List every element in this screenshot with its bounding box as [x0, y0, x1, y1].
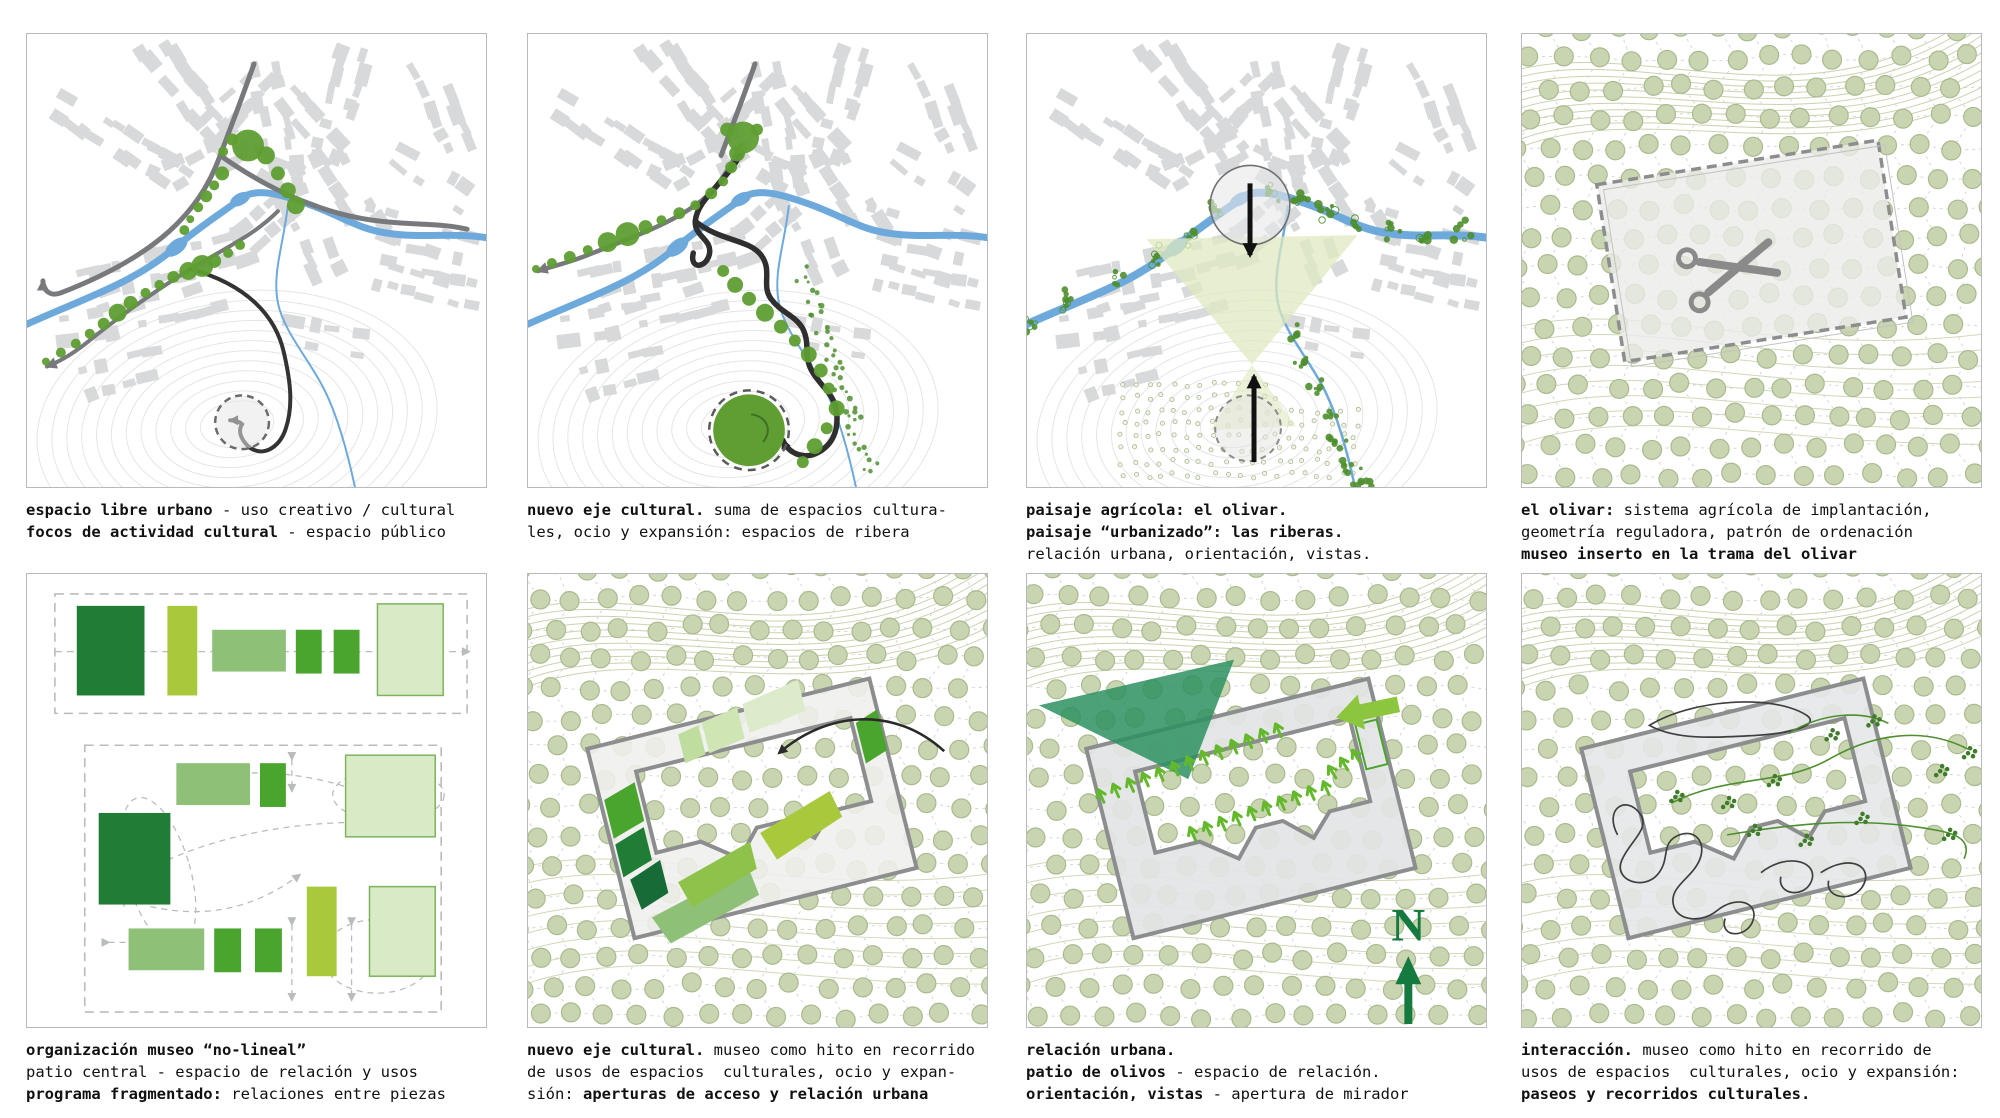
caption-line: relación urbana.: [1026, 1039, 1487, 1061]
caption-line: patio de olivos - espacio de relación.: [1026, 1061, 1487, 1083]
panel-espacio-libre-urbano: espacio libre urbano - uso creativo / cu…: [26, 33, 487, 543]
map-nuevo-eje-cultural-svg: [528, 34, 987, 487]
caption-line: geometría reguladora, patrón de ordenaci…: [1521, 521, 1982, 543]
caption-line: museo inserto en la trama del olivar: [1521, 543, 1982, 565]
caption-line: nuevo eje cultural. suma de espacios cul…: [527, 499, 988, 521]
panel-interaccion: interacción. museo como hito en recorrid…: [1521, 573, 1982, 1105]
panel-el-olivar: el olivar: sistema agrícola de implantac…: [1521, 33, 1982, 565]
caption-line: orientación, vistas - apertura de mirado…: [1026, 1083, 1487, 1105]
caption-line: programa fragmentado: relaciones entre p…: [26, 1083, 487, 1105]
caption-nuevo-eje-cultural-museo: nuevo eje cultural. museo como hito en r…: [527, 1039, 988, 1105]
caption-line: paisaje agrícola: el olivar.: [1026, 499, 1487, 521]
map-paisaje-agricola: [1026, 33, 1487, 488]
map-espacio-libre-urbano: [26, 33, 487, 488]
diagram-interaccion: [1521, 573, 1982, 1028]
panel-nuevo-eje-cultural-urbano: nuevo eje cultural. suma de espacios cul…: [527, 33, 988, 543]
caption-line: organización museo “no-lineal”: [26, 1039, 487, 1061]
caption-line: focos de actividad cultural - espacio pú…: [26, 521, 487, 543]
caption-organizacion-museo: organización museo “no-lineal”patio cent…: [26, 1039, 487, 1105]
panel-paisaje-agricola: paisaje agrícola: el olivar.paisaje “urb…: [1026, 33, 1487, 565]
diagram-relacion-urbana-svg: N: [1027, 574, 1486, 1027]
panel-nuevo-eje-cultural-museo: nuevo eje cultural. museo como hito en r…: [527, 573, 988, 1105]
caption-line: espacio libre urbano - uso creativo / cu…: [26, 499, 487, 521]
caption-interaccion: interacción. museo como hito en recorrid…: [1521, 1039, 1982, 1105]
diagram-sheet: espacio libre urbano - uso creativo / cu…: [0, 0, 2000, 1118]
caption-line: paseos y recorridos culturales.: [1521, 1083, 1982, 1105]
diagram-el-olivar-svg: [1522, 34, 1981, 487]
caption-line: nuevo eje cultural. museo como hito en r…: [527, 1039, 988, 1061]
caption-line: paisaje “urbanizado”: las riberas.: [1026, 521, 1487, 543]
panel-organizacion-museo: organización museo “no-lineal”patio cent…: [26, 573, 487, 1105]
map-paisaje-agricola-svg: [1027, 34, 1486, 487]
caption-line: relación urbana, orientación, vistas.: [1026, 543, 1487, 565]
diagram-el-olivar: [1521, 33, 1982, 488]
caption-nuevo-eje-cultural-urbano: nuevo eje cultural. suma de espacios cul…: [527, 499, 988, 543]
caption-el-olivar: el olivar: sistema agrícola de implantac…: [1521, 499, 1982, 565]
caption-line: patio central - espacio de relación y us…: [26, 1061, 487, 1083]
north-compass-label: N: [1391, 899, 1425, 951]
caption-line: el olivar: sistema agrícola de implantac…: [1521, 499, 1982, 521]
caption-line: usos de espacios culturales, ocio y expa…: [1521, 1061, 1982, 1083]
caption-espacio-libre-urbano: espacio libre urbano - uso creativo / cu…: [26, 499, 487, 543]
panel-relacion-urbana: N relación urbana.patio de olivos - espa…: [1026, 573, 1487, 1105]
caption-paisaje-agricola: paisaje agrícola: el olivar.paisaje “urb…: [1026, 499, 1487, 565]
diagram-eje-cultural-museo: [527, 573, 988, 1028]
caption-line: interacción. museo como hito en recorrid…: [1521, 1039, 1982, 1061]
caption-line: de usos de espacios culturales, ocio y e…: [527, 1061, 988, 1083]
map-espacio-libre-urbano-svg: [27, 34, 486, 487]
diagram-eje-cultural-museo-svg: [528, 574, 987, 1027]
caption-line: les, ocio y expansión: espacios de riber…: [527, 521, 988, 543]
diagram-organizacion-museo: [26, 573, 487, 1028]
diagram-organizacion-museo-svg: [27, 574, 486, 1027]
diagram-interaccion-svg: [1522, 574, 1981, 1027]
map-nuevo-eje-cultural: [527, 33, 988, 488]
diagram-relacion-urbana: N: [1026, 573, 1487, 1028]
caption-line: sión: aperturas de acceso y relación urb…: [527, 1083, 988, 1105]
caption-relacion-urbana: relación urbana.patio de olivos - espaci…: [1026, 1039, 1487, 1105]
